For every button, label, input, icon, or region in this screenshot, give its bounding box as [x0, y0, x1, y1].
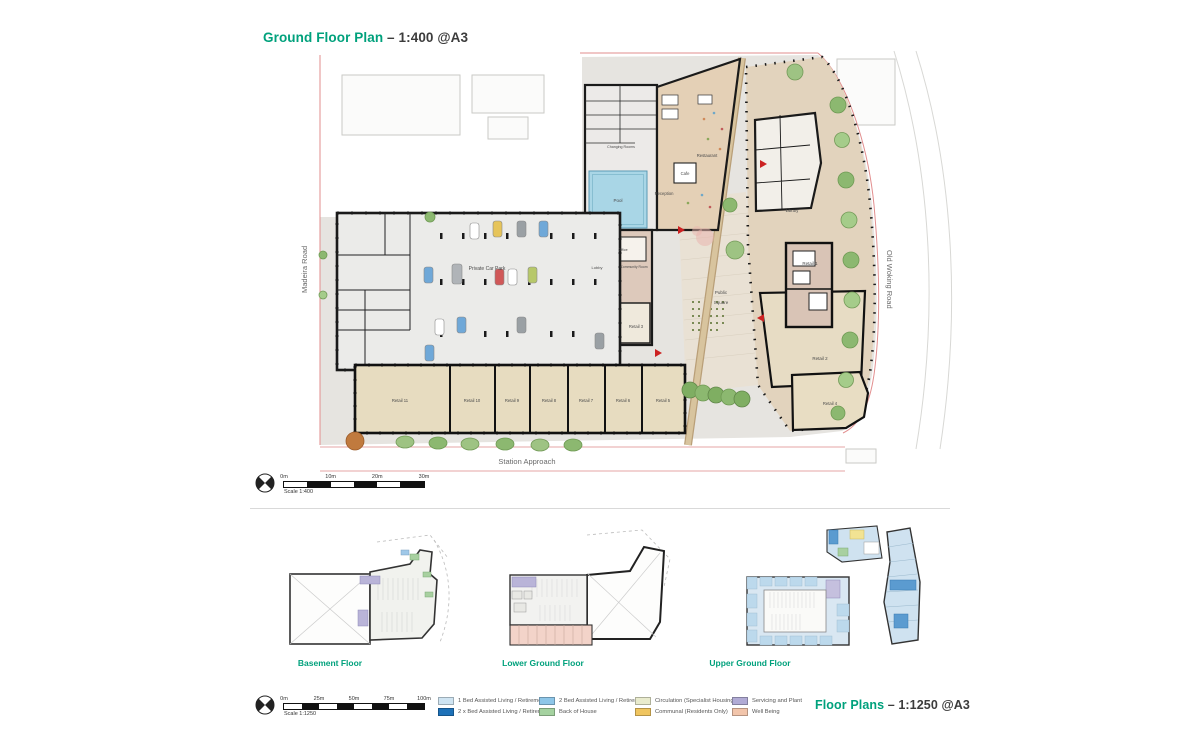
upper-ground-floor-label: Upper Ground Floor	[690, 658, 810, 668]
upper-ground-top-wing	[827, 526, 882, 562]
legend-swatch	[438, 708, 454, 716]
scale-tick: 100m	[417, 696, 431, 702]
wellness-building	[585, 85, 657, 230]
scale-tick: 50m	[349, 696, 360, 702]
north-arrow-icon	[253, 471, 277, 495]
main-scale-bar: 0m 10m 20m 30m Scale 1:400	[253, 471, 428, 501]
label-retail-9: Retail 9	[505, 398, 520, 403]
legend-column: 1 Bed Assisted Living / Retirement 2 x B…	[438, 697, 539, 716]
legend-swatch	[635, 697, 651, 705]
legend: 1 Bed Assisted Living / Retirement 2 x B…	[438, 697, 818, 716]
legend-label: 2 x Bed Assisted Living / Retirement	[458, 709, 551, 715]
upper-ground-right-block	[884, 528, 920, 644]
scale-caption: Scale 1:400	[284, 489, 313, 495]
label-reception: Reception	[655, 191, 675, 196]
legend-item: Well Being	[732, 708, 818, 716]
library-building	[755, 113, 821, 211]
retail-3-room	[620, 303, 650, 343]
label-changing-rooms: Changing Rooms	[607, 145, 635, 149]
scale-tick: 0m	[280, 474, 288, 480]
road-label-station-approach: Station Approach	[498, 457, 555, 466]
basement-plan	[282, 532, 457, 652]
floor-plans-scale-bar: 0m 25m 50m 75m 100m Scale 1:1250	[253, 693, 428, 723]
car-park-building	[337, 213, 620, 370]
legend-item: Circulation (Specialist Housing)	[635, 697, 732, 705]
label-retail-4: Retail 4	[823, 401, 838, 406]
lower-ground-plan	[492, 527, 677, 655]
upper-ground-communal	[850, 530, 864, 539]
lower-ground-wellbeing	[510, 625, 592, 645]
basement-floor-label: Basement Floor	[270, 658, 390, 668]
north-arrow-icon	[253, 693, 277, 717]
scale-tick: 25m	[314, 696, 325, 702]
legend-item: Servicing and Plant	[732, 697, 818, 705]
legend-item: 2 Bed Assisted Living / Retirement	[539, 697, 635, 705]
lower-ground-floor-label: Lower Ground Floor	[483, 658, 603, 668]
legend-item: Back of House	[539, 708, 635, 716]
ground-floor-plan-drawing: Madeira Road Old Woking Road Station App…	[290, 45, 960, 480]
legend-label: 1 Bed Assisted Living / Retirement	[458, 698, 546, 704]
legend-item: Communal (Residents Only)	[635, 708, 732, 716]
label-community-room: Community Room	[620, 265, 647, 269]
upper-ground-left-block	[747, 577, 849, 645]
scale-bar-strip: 0m 10m 20m 30m Scale 1:400	[283, 481, 425, 488]
scale-tick: 0m	[280, 696, 288, 702]
lower-ground-plant	[512, 577, 536, 587]
legend-column: Circulation (Specialist Housing) Communa…	[635, 697, 732, 716]
scale-tick: 30m	[419, 474, 430, 480]
legend-swatch	[438, 697, 454, 705]
legend-label: Circulation (Specialist Housing)	[655, 698, 736, 704]
legend-swatch	[635, 708, 651, 716]
scale-caption: Scale 1:1250	[284, 711, 316, 717]
upper-ground-plant	[826, 580, 840, 598]
label-retail-1: Retail 1	[802, 261, 818, 266]
label-retail-10: Retail 10	[464, 398, 481, 403]
legend-label: Back of House	[559, 709, 597, 715]
label-retail-5: Retail 5	[656, 398, 671, 403]
legend-column: Servicing and Plant Well Being	[732, 697, 818, 716]
label-library: Library	[786, 208, 800, 213]
legend-column: 2 Bed Assisted Living / Retirement Back …	[539, 697, 635, 716]
legend-swatch	[539, 708, 555, 716]
upper-ground-boh	[838, 548, 848, 556]
plan-sheet: { "header": { "title_highlight": "Ground…	[0, 0, 1200, 733]
page-title-highlight: Ground Floor Plan	[263, 30, 383, 45]
label-retail-6: Retail 6	[616, 398, 631, 403]
label-public-square-1: Public	[715, 290, 728, 295]
label-retail-7: Retail 7	[579, 398, 594, 403]
station-approach-band	[320, 447, 845, 471]
label-retail-11: Retail 11	[392, 398, 409, 403]
label-office: Office	[618, 248, 627, 252]
legend-item: 2 x Bed Assisted Living / Retirement	[438, 708, 539, 716]
legend-swatch	[732, 697, 748, 705]
label-public-square-2: Square	[714, 300, 729, 305]
upper-ground-carpark	[764, 590, 826, 632]
page-title-rest: – 1:400 @A3	[383, 30, 468, 45]
scale-tick: 20m	[372, 474, 383, 480]
lower-ground-void	[587, 547, 664, 639]
label-retail-3: Retail 3	[629, 324, 644, 329]
road-label-madeira: Madeira Road	[300, 246, 309, 293]
upper-ground-plan	[742, 522, 927, 657]
floor-plans-title-rest: – 1:1250 @A3	[884, 698, 970, 712]
floor-plans-title: Floor Plans – 1:1250 @A3	[815, 698, 970, 712]
scale-tick: 75m	[384, 696, 395, 702]
scale-tick: 10m	[325, 474, 336, 480]
core-building	[786, 243, 832, 327]
label-pool: Pool	[613, 198, 622, 203]
legend-swatch	[732, 708, 748, 716]
road-label-old-woking: Old Woking Road	[885, 250, 894, 309]
label-cafe: Cafe	[681, 171, 691, 176]
label-retail-8: Retail 8	[542, 398, 557, 403]
floor-plans-title-highlight: Floor Plans	[815, 698, 884, 712]
scale-bar-strip: 0m 25m 50m 75m 100m Scale 1:1250	[283, 703, 425, 710]
section-divider	[250, 508, 950, 509]
label-lobby: Lobby	[592, 265, 603, 270]
autumn-tree	[346, 432, 364, 450]
legend-label: Servicing and Plant	[752, 698, 802, 704]
label-retail-2: Retail 2	[812, 356, 828, 361]
basement-unit	[401, 550, 409, 555]
page-title: Ground Floor Plan – 1:400 @A3	[263, 30, 468, 45]
label-restaurant: Restaurant	[697, 153, 718, 158]
legend-label: Communal (Residents Only)	[655, 709, 728, 715]
legend-swatch	[539, 697, 555, 705]
legend-item: 1 Bed Assisted Living / Retirement	[438, 697, 539, 705]
label-private-car-park: Private Car Park	[469, 266, 506, 272]
legend-label: Well Being	[752, 709, 780, 715]
